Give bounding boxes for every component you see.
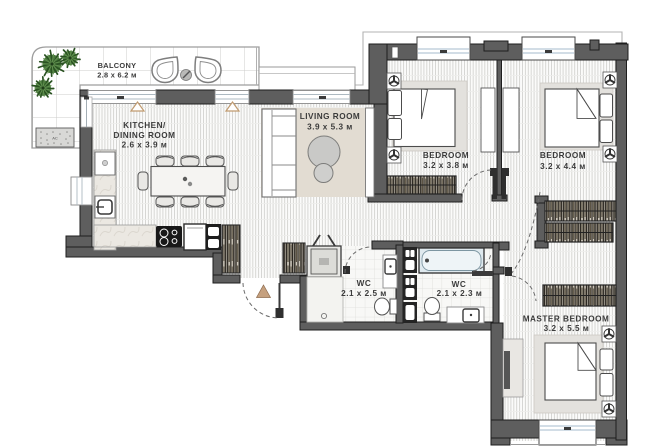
svg-text:3.2 x 4.4 м: 3.2 x 4.4 м <box>540 162 586 171</box>
svg-text:3.9 x 5.3 м: 3.9 x 5.3 м <box>307 123 353 132</box>
svg-text:DINING ROOM: DINING ROOM <box>114 131 176 140</box>
svg-text:2.1 x 2.3 м: 2.1 x 2.3 м <box>437 289 483 298</box>
svg-text:BALCONY: BALCONY <box>98 61 137 70</box>
svg-text:2.8 x 6.2 м: 2.8 x 6.2 м <box>97 70 137 79</box>
svg-text:WC: WC <box>452 280 467 289</box>
svg-text:KITCHEN/: KITCHEN/ <box>123 121 166 130</box>
svg-text:MASTER BEDROOM: MASTER BEDROOM <box>523 315 610 324</box>
svg-text:LIVING ROOM: LIVING ROOM <box>300 112 361 121</box>
svg-text:3.2 x 5.5 м: 3.2 x 5.5 м <box>544 324 590 333</box>
svg-text:WC: WC <box>357 279 372 288</box>
svg-text:2.1 x 2.5 м: 2.1 x 2.5 м <box>341 289 387 298</box>
svg-text:BEDROOM: BEDROOM <box>423 151 469 160</box>
svg-text:AC: AC <box>52 136 58 141</box>
svg-text:3.2 x 3.8 м: 3.2 x 3.8 м <box>423 161 469 170</box>
svg-text:2.6 x 3.9 м: 2.6 x 3.9 м <box>122 141 168 150</box>
svg-text:BEDROOM: BEDROOM <box>540 151 586 160</box>
